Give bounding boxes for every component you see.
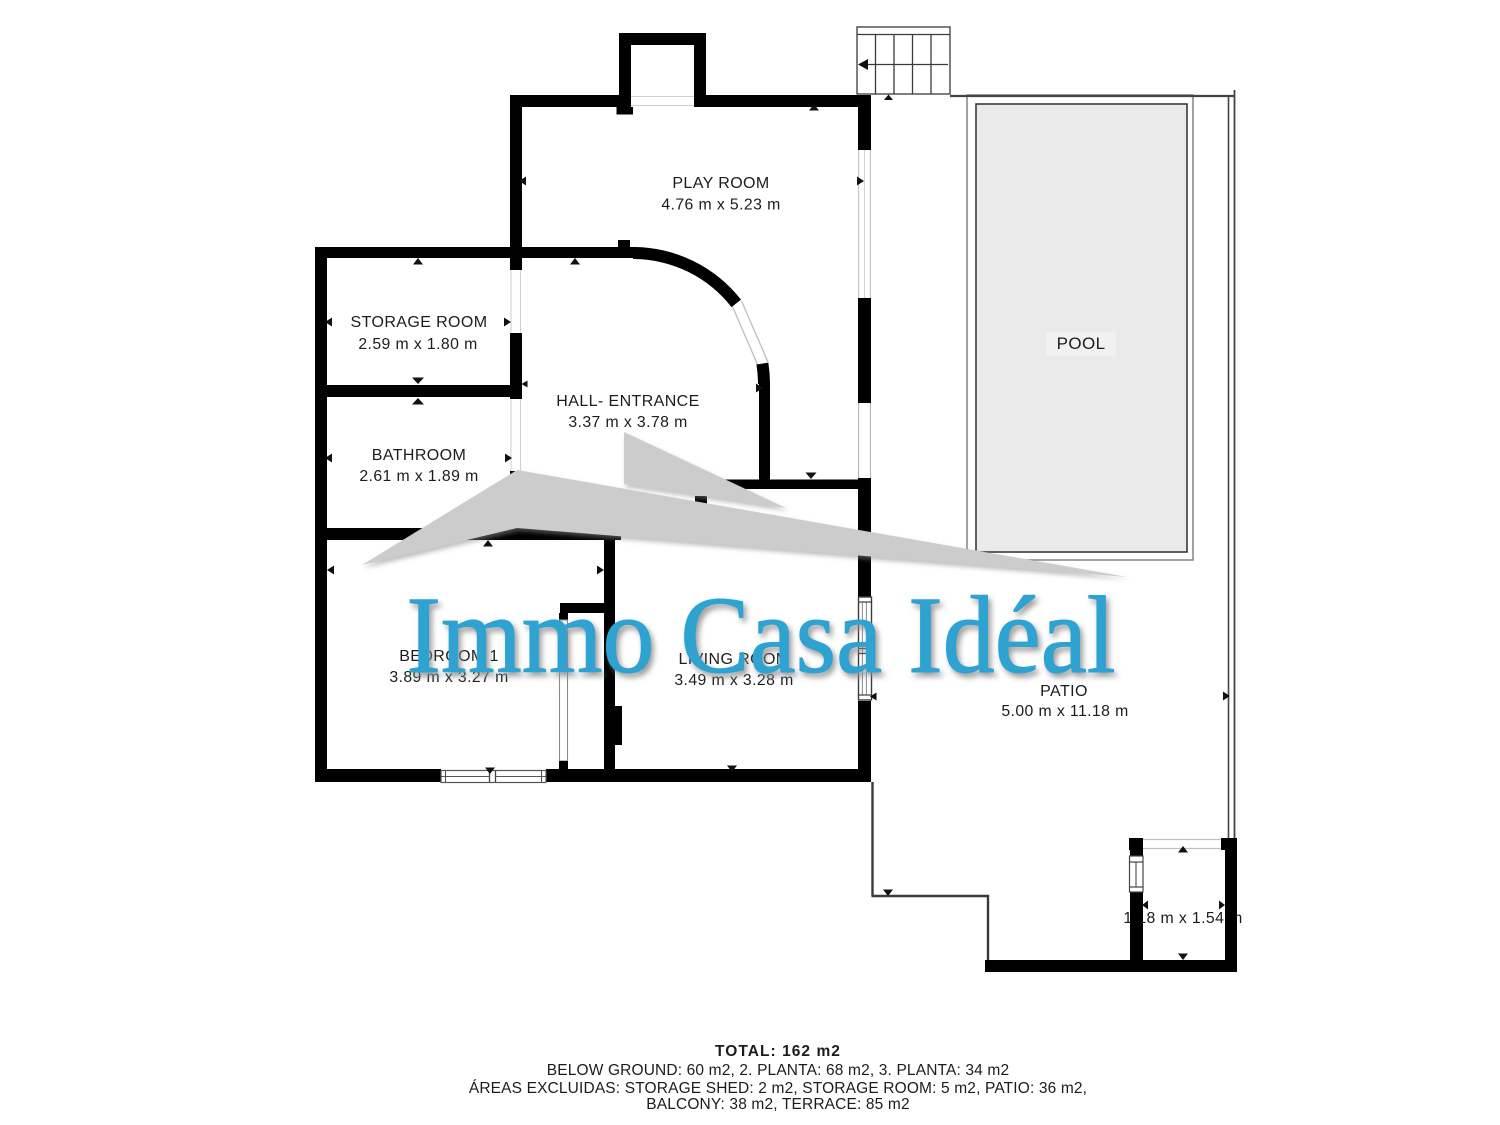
svg-text:2.61 m x 1.89 m: 2.61 m x 1.89 m — [359, 468, 478, 485]
svg-text:HALL- ENTRANCE: HALL- ENTRANCE — [556, 393, 699, 410]
svg-text:PLAY ROOM: PLAY ROOM — [672, 175, 769, 192]
svg-text:BATHROOM: BATHROOM — [372, 447, 466, 464]
svg-text:3.37 m x 3.78 m: 3.37 m x 3.78 m — [568, 414, 687, 431]
svg-text:2.59 m x 1.80 m: 2.59 m x 1.80 m — [358, 336, 477, 353]
svg-text:BELOW GROUND: 60 m2, 2. PLANTA: BELOW GROUND: 60 m2, 2. PLANTA: 68 m2, 3… — [547, 1062, 1010, 1079]
svg-text:ÁREAS EXCLUIDAS: STORAGE SHED:: ÁREAS EXCLUIDAS: STORAGE SHED: 2 m2, STO… — [469, 1080, 1087, 1097]
svg-text:4.76 m x 5.23 m: 4.76 m x 5.23 m — [661, 197, 780, 214]
svg-text:Immo Casa Idéal: Immo Casa Idéal — [406, 575, 1115, 696]
svg-text:5.00 m x 11.18 m: 5.00 m x 11.18 m — [1001, 703, 1128, 720]
svg-text:TOTAL: 162 m2: TOTAL: 162 m2 — [715, 1043, 841, 1060]
svg-text:BALCONY: 38 m2, TERRACE: 85 m2: BALCONY: 38 m2, TERRACE: 85 m2 — [646, 1096, 910, 1113]
svg-text:STORAGE ROOM: STORAGE ROOM — [351, 314, 488, 331]
svg-text:POOL: POOL — [1057, 334, 1106, 353]
